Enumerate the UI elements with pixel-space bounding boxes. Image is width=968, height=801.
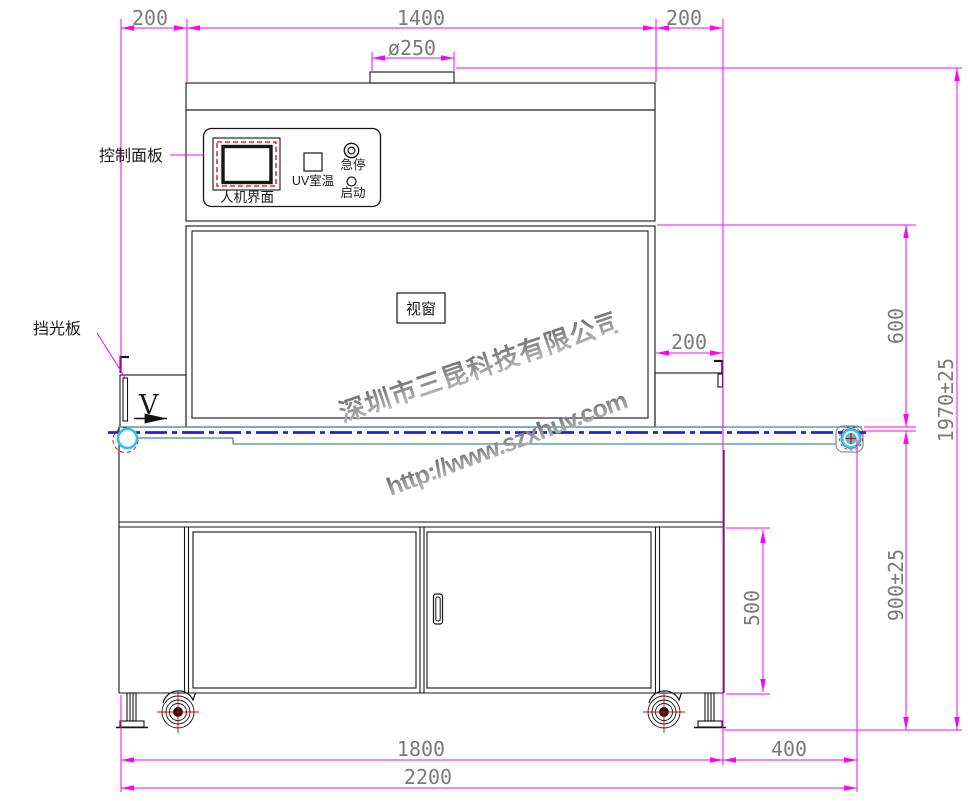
dim-text-top-width: 1400 (397, 6, 445, 30)
dim-text-600: 600 (884, 308, 908, 344)
left-shield-bracket (121, 357, 129, 373)
dim-text-duct: ø250 (388, 36, 436, 60)
conveyor-group (108, 419, 866, 453)
dim-text-1970: 1970±25 (934, 358, 958, 442)
door-handle (434, 594, 443, 624)
left-caster-wheel (162, 691, 196, 728)
dim-text-900: 900±25 (884, 549, 908, 621)
dimension-lines (121, 28, 957, 788)
top-cover (186, 83, 655, 110)
right-outlet-tunnel (655, 373, 723, 427)
caster-crosshairs (157, 691, 685, 733)
hmi-screen (223, 147, 271, 183)
right-leveling-foot (694, 693, 726, 728)
emergency-stop-button (344, 143, 358, 157)
cabinet-door-left (193, 532, 416, 688)
cad-drawing-canvas: 200 1400 200 ø250 600 900±25 1970±25 500… (0, 0, 968, 801)
exhaust-duct (370, 72, 454, 83)
uv-chamber (186, 226, 655, 427)
drawing-svg: 200 1400 200 ø250 600 900±25 1970±25 500… (0, 0, 968, 801)
cabinet-door-right (427, 532, 651, 688)
right-shield-bracket (714, 361, 722, 373)
extension-lines (97, 19, 962, 792)
control-panel-label: 控制面板 (99, 147, 163, 165)
belt-direction-label: V (138, 390, 159, 421)
start-button (347, 177, 356, 186)
dim-text-top-left: 200 (132, 6, 168, 30)
dimension-texts: 200 1400 200 ø250 600 900±25 1970±25 500… (132, 6, 958, 789)
left-roller (118, 429, 137, 448)
emergency-stop-label: 急停 (340, 157, 365, 172)
chamber-front-panel (192, 231, 648, 418)
machine-outline (116, 72, 726, 733)
viewing-window-label: 视窗 (406, 300, 436, 318)
dim-text-2200: 2200 (404, 765, 452, 789)
start-label: 启动 (340, 186, 365, 200)
dim-text-top-right: 200 (666, 6, 702, 30)
dim-text-mid-200: 200 (671, 330, 707, 354)
light-shield-plate (123, 378, 128, 421)
hmi-screen-red-dashed-border (217, 142, 276, 186)
emergency-stop-button-center (348, 147, 355, 154)
dim-text-500: 500 (740, 590, 764, 626)
right-caster-wheel (648, 691, 682, 728)
dim-text-1800: 1800 (397, 737, 445, 761)
door-handle-slot (436, 597, 440, 621)
hmi-label: 人机界面 (220, 190, 274, 205)
right-shield-plate (718, 374, 723, 387)
conveyor-frame (118, 426, 863, 452)
uv-temp-label: UV室温 (292, 173, 335, 188)
light-shield-label: 挡光板 (33, 320, 81, 338)
uv-temp-indicator (304, 153, 322, 171)
dim-text-400: 400 (771, 737, 807, 761)
labels: 控制面板 人机界面 UV室温 急停 启动 视窗 挡光板 V (33, 147, 436, 421)
